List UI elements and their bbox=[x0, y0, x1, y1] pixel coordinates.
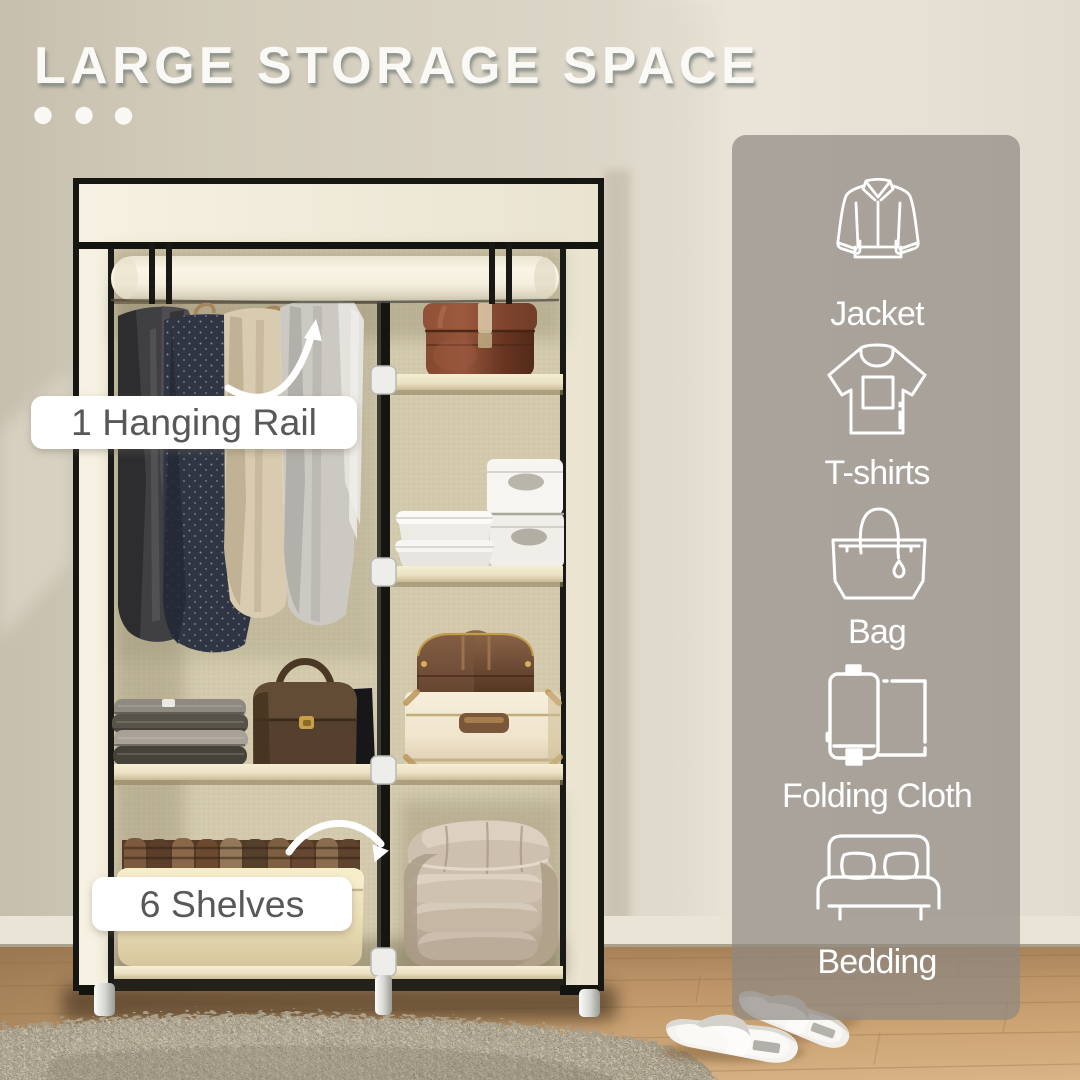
svg-text:Bedding: Bedding bbox=[817, 943, 936, 981]
svg-text:6 Shelves: 6 Shelves bbox=[140, 883, 305, 925]
svg-text:T-shirts: T-shirts bbox=[824, 454, 929, 492]
svg-text:Folding Cloth: Folding Cloth bbox=[782, 777, 972, 815]
svg-text:Jacket: Jacket bbox=[830, 295, 925, 333]
svg-text:LARGE STORAGE SPACE: LARGE STORAGE SPACE bbox=[34, 37, 760, 95]
svg-text:1 Hanging Rail: 1 Hanging Rail bbox=[71, 401, 317, 443]
svg-text:Bag: Bag bbox=[848, 613, 906, 651]
